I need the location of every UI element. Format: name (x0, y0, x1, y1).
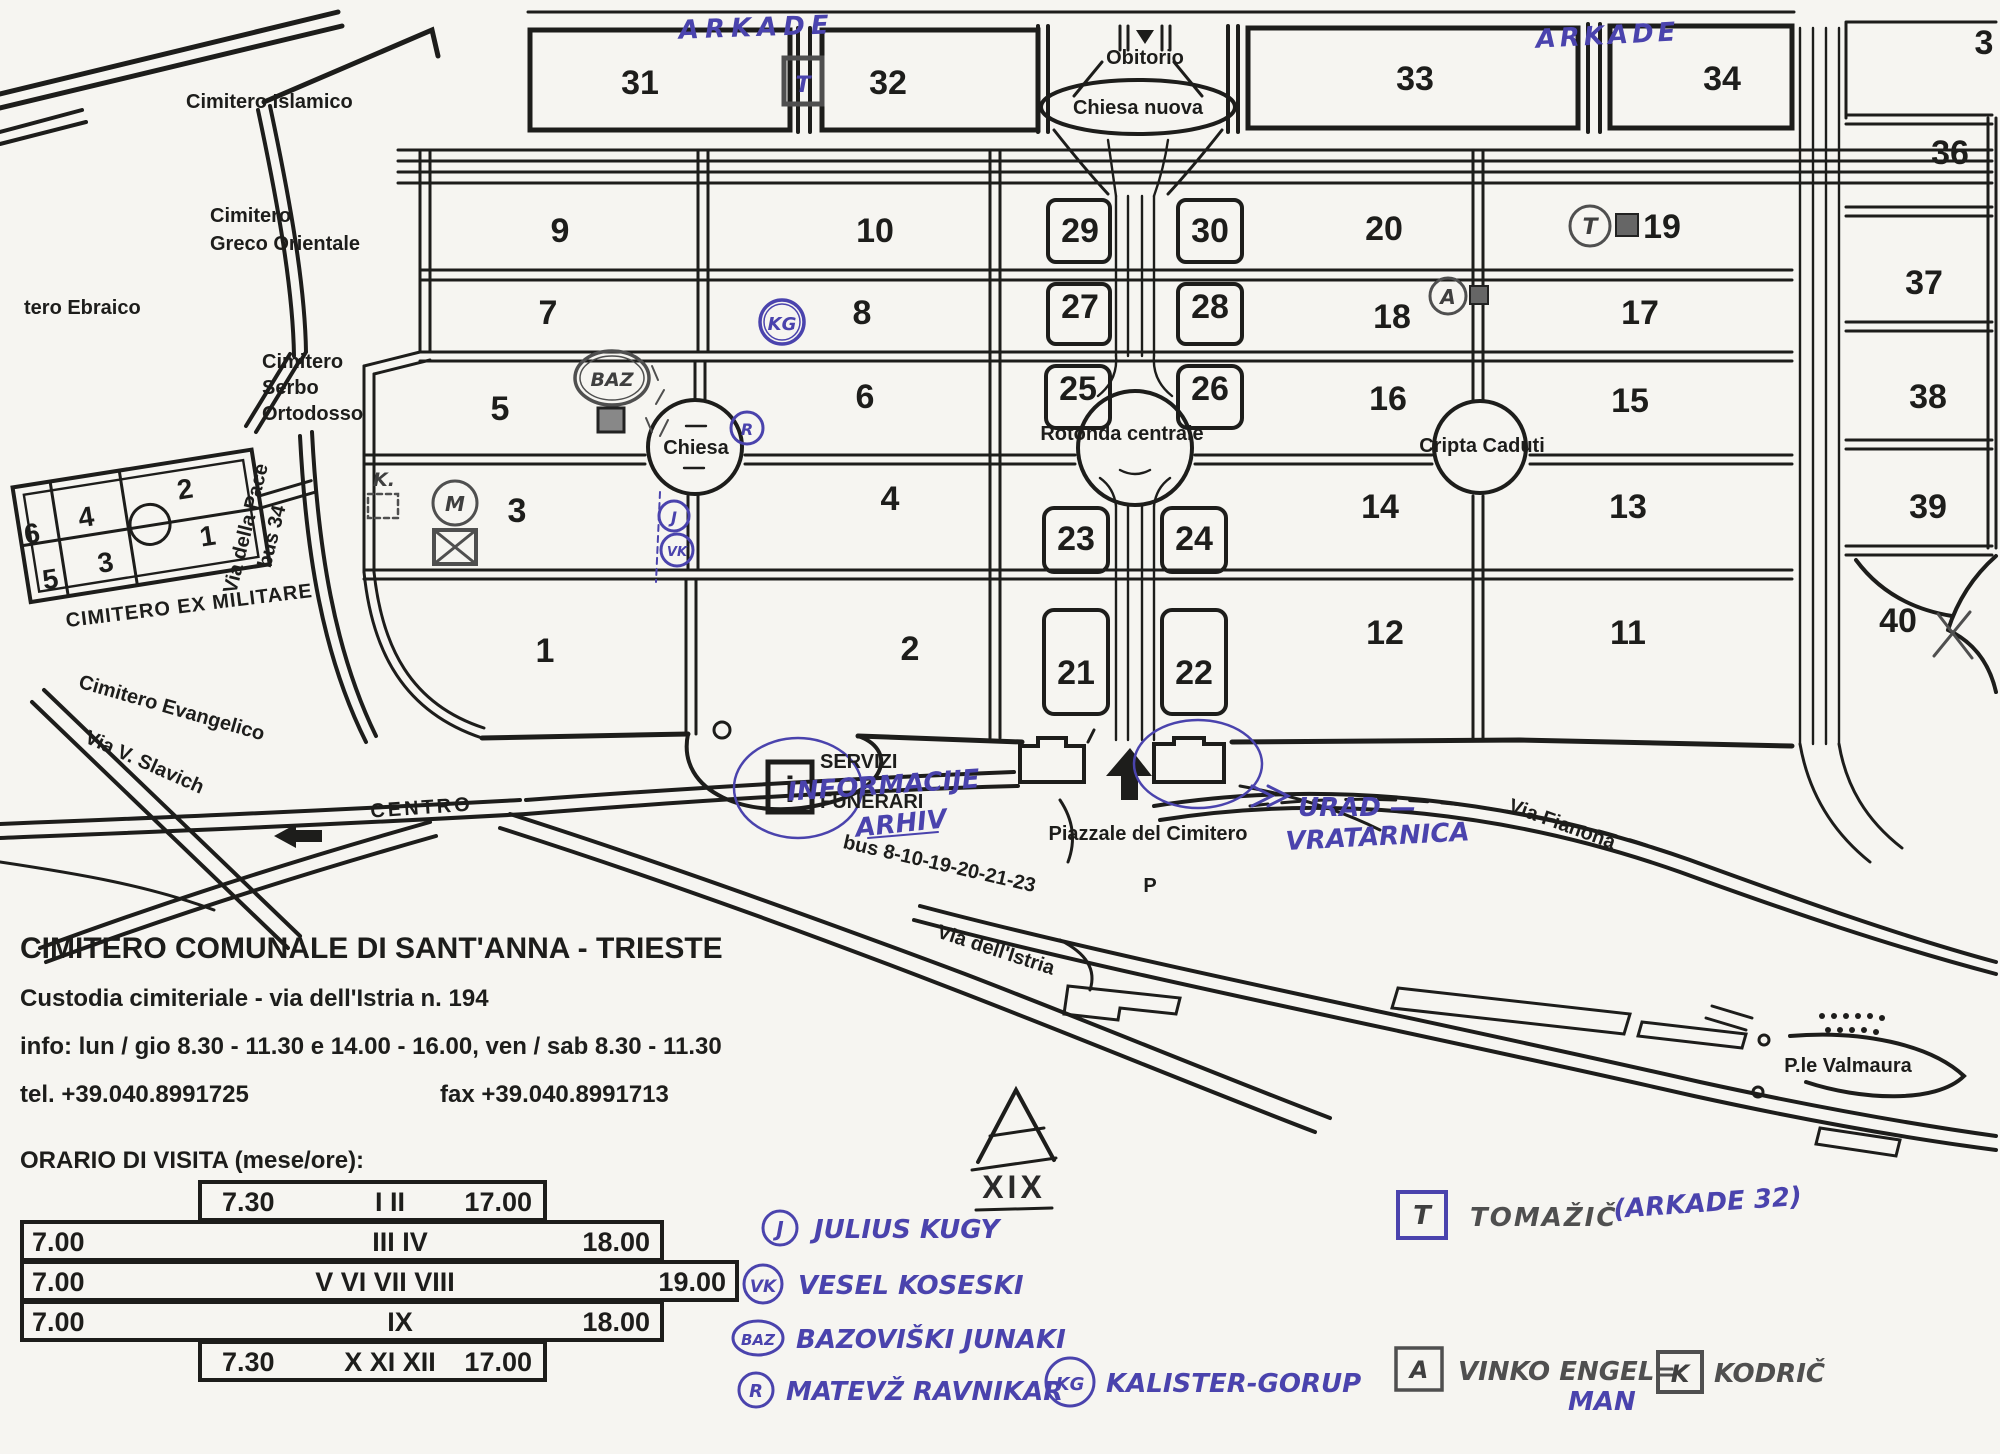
parking-p: P (1143, 875, 1156, 897)
orario-r2-open: 7.00 (32, 1227, 85, 1257)
legend-t-sym: T (1413, 1201, 1433, 1231)
a-circle-letter: A (1438, 285, 1455, 309)
orario-r5-close: 17.00 (464, 1347, 532, 1377)
rotonda-label: Rotonda centrale (1040, 423, 1203, 445)
block-22: 22 (1175, 654, 1213, 692)
area-serbo-3: Ortodosso (262, 403, 363, 425)
block-16: 16 (1369, 380, 1407, 418)
block-4: 4 (881, 480, 900, 518)
area-serbo-2: Serbo (262, 377, 319, 399)
block-25: 25 (1059, 370, 1097, 408)
militare-block-4: 4 (76, 500, 97, 533)
k-dot-label: K. (373, 469, 395, 491)
block-17: 17 (1621, 294, 1659, 332)
legend-kg-sym: KG (1056, 1374, 1085, 1395)
legend-r-sym: R (749, 1381, 763, 1402)
xix-label: XIX (982, 1169, 1046, 1205)
block-11: 11 (1610, 614, 1646, 652)
block-31: 31 (621, 64, 659, 102)
orario-r5-open: 7.30 (222, 1347, 275, 1377)
orario-r1-close: 17.00 (464, 1187, 532, 1217)
militare-block-1: 1 (197, 520, 217, 553)
legend-j-sym: J (772, 1217, 784, 1241)
rotonda-circle (1078, 391, 1192, 505)
vk-circle-letter: VK (667, 545, 688, 560)
arkade-left: ARKADE (676, 10, 835, 45)
legend-a-name2: MAN (1568, 1387, 1636, 1417)
t-box-arcade-letter: T (795, 73, 812, 98)
servizi-label-1: SERVIZI (820, 751, 897, 773)
block-7: 7 (539, 294, 558, 332)
block-37: 37 (1905, 264, 1943, 302)
block-30: 30 (1191, 212, 1229, 250)
obitorio-label: Obitorio (1106, 47, 1184, 69)
block-19: 19 (1643, 208, 1681, 246)
chiesa-nuova-label: Chiesa nuova (1073, 97, 1204, 119)
block-28: 28 (1191, 288, 1229, 326)
orario-r4-open: 7.00 (32, 1307, 85, 1337)
orario-r4-close: 18.00 (582, 1307, 650, 1337)
block-10: 10 (856, 212, 894, 250)
area-serbo-1: Cimitero (262, 351, 343, 373)
block-23: 23 (1057, 520, 1095, 558)
militare-block-2: 2 (175, 473, 195, 506)
fax-line: fax +39.040.8991713 (440, 1081, 669, 1108)
legend-baz-name: BAZOVIŠKI JUNAKI (796, 1323, 1066, 1355)
chiesa-label: Chiesa (663, 437, 729, 459)
street-piazzale: Piazzale del Cimitero (1049, 823, 1248, 845)
legend-k-sym: K (1671, 1360, 1692, 1388)
block-35-partial: 3 (1975, 24, 1994, 62)
info-text-block: CIMITERO COMUNALE DI SANT'ANNA - TRIESTE… (20, 932, 723, 1174)
block-36: 36 (1931, 134, 1969, 172)
orario-r1-open: 7.30 (222, 1187, 275, 1217)
legend-t-note: (ARKADE 32) (1612, 1182, 1802, 1225)
scanned-cemetery-map: 6 4 2 5 3 1 (0, 0, 2000, 1454)
map-title: CIMITERO COMUNALE DI SANT'ANNA - TRIESTE (20, 932, 723, 965)
orario-r4-months: IX (387, 1307, 413, 1337)
orario-r5-months: X XI XII (344, 1347, 436, 1377)
cripta-label: Cripta Caduti (1419, 435, 1545, 457)
legend-k-name: KODRIČ (1714, 1357, 1826, 1389)
block-26: 26 (1191, 370, 1229, 408)
south-buildings (1064, 986, 1900, 1156)
legend-r-name: MATEVŽ RAVNIKAR (786, 1375, 1063, 1407)
valmaura-area (1706, 1006, 1964, 1097)
block-2: 2 (901, 630, 920, 668)
vratarnica: VRATARNICA (1285, 817, 1471, 857)
block-24: 24 (1175, 520, 1213, 558)
area-ex-militare: CIMITERO EX MILITARE (65, 580, 314, 632)
orario-table: 7.30 I II 17.00 7.00 III IV 18.00 7.00 V… (22, 1182, 737, 1380)
area-labels: Cimitero Islamico Cimitero Greco Orienta… (24, 91, 363, 745)
area-ebraico: tero Ebraico (24, 297, 141, 319)
block-9: 9 (551, 212, 570, 250)
area-greco-2: Greco Orientale (210, 233, 360, 255)
pencil-marks (368, 58, 1972, 658)
orario-r2-close: 18.00 (582, 1227, 650, 1257)
legend-j-name: JULIUS KUGY (809, 1215, 1003, 1245)
south-sweep-roads (914, 906, 1996, 1150)
orario-r1-months: I II (375, 1187, 405, 1217)
block-5: 5 (491, 390, 510, 428)
orario-r3-open: 7.00 (32, 1267, 85, 1297)
legend-baz-sym: BAZ (741, 1331, 776, 1349)
block-6: 6 (856, 378, 875, 416)
block-39: 39 (1909, 488, 1947, 526)
urad: URAD — (1298, 793, 1416, 823)
area-islamico: Cimitero Islamico (186, 91, 353, 113)
j-circle-letter: J (668, 508, 677, 527)
legend-vk-sym: VK (750, 1277, 778, 1297)
entrance-arrow-icon (1106, 748, 1152, 800)
block-21: 21 (1057, 654, 1095, 692)
legend-a-name: VINKO ENGEL= (1458, 1357, 1676, 1387)
legend-kg-name: KALISTER-GORUP (1106, 1369, 1361, 1399)
parking-dots (1819, 1013, 1885, 1035)
block-40: 40 (1879, 602, 1917, 640)
legend-a-sym: A (1408, 1356, 1429, 1384)
info-hours-line: info: lun / gio 8.30 - 11.30 e 14.00 - 1… (20, 1033, 722, 1060)
block-14: 14 (1361, 488, 1399, 526)
block-12: 12 (1366, 614, 1404, 652)
block-18: 18 (1373, 298, 1411, 336)
block-8: 8 (853, 294, 872, 332)
m-circle-letter: M (445, 492, 465, 516)
block-27: 27 (1061, 288, 1099, 326)
block-13: 13 (1609, 488, 1647, 526)
area-greco-1: Cimitero (210, 205, 291, 227)
orario-r3-close: 19.00 (658, 1267, 726, 1297)
grid-vertical-roads (686, 28, 1996, 744)
legend-t-name: TOMAŽIČ (1470, 1201, 1617, 1233)
block-15: 15 (1611, 382, 1649, 420)
block-numbers: 31 32 33 34 3 9 10 29 30 20 19 7 8 27 28… (491, 24, 1994, 692)
t-circle-letter: T (1582, 215, 1599, 240)
kg-circle-letter: KG (768, 314, 797, 335)
block-32: 32 (869, 64, 907, 102)
block-29: 29 (1061, 212, 1099, 250)
custodia-line: Custodia cimiteriale - via dell'Istria n… (20, 985, 489, 1012)
orario-r3-months: V VI VII VIII (315, 1267, 455, 1297)
block-34: 34 (1703, 60, 1741, 98)
block-38: 38 (1909, 378, 1947, 416)
block-20: 20 (1365, 210, 1403, 248)
landmark-labels: Obitorio Chiesa nuova Chiesa Rotonda cen… (663, 47, 1545, 1205)
legend-vk-name: VESEL KOSESKI (798, 1271, 1024, 1301)
orario-title: ORARIO DI VISITA (mese/ore): (20, 1147, 364, 1174)
tel-line: tel. +39.040.8991725 (20, 1081, 249, 1108)
block-1: 1 (536, 632, 555, 670)
legend-markers: J JULIUS KUGY VK VESEL KOSESKI BAZ BAZOV… (733, 1211, 1361, 1407)
arkade-right: ARKADE (1533, 17, 1680, 55)
militare-block-3: 3 (95, 546, 115, 579)
orario-r2-months: III IV (372, 1227, 428, 1257)
cemetery-west-wall (364, 150, 484, 738)
street-valmaura: P.le Valmaura (1784, 1055, 1912, 1077)
baz-oval-letter: BAZ (591, 369, 635, 391)
block-3: 3 (508, 492, 527, 530)
entrance-gates (1020, 730, 1224, 800)
block-33: 33 (1396, 60, 1434, 98)
street-fianona: Via Fianona (1506, 795, 1619, 854)
legend-right: T TOMAŽIČ (ARKADE 32) A VINKO ENGEL= MAN… (1396, 1182, 1826, 1417)
r-circle-letter: R (741, 420, 753, 439)
